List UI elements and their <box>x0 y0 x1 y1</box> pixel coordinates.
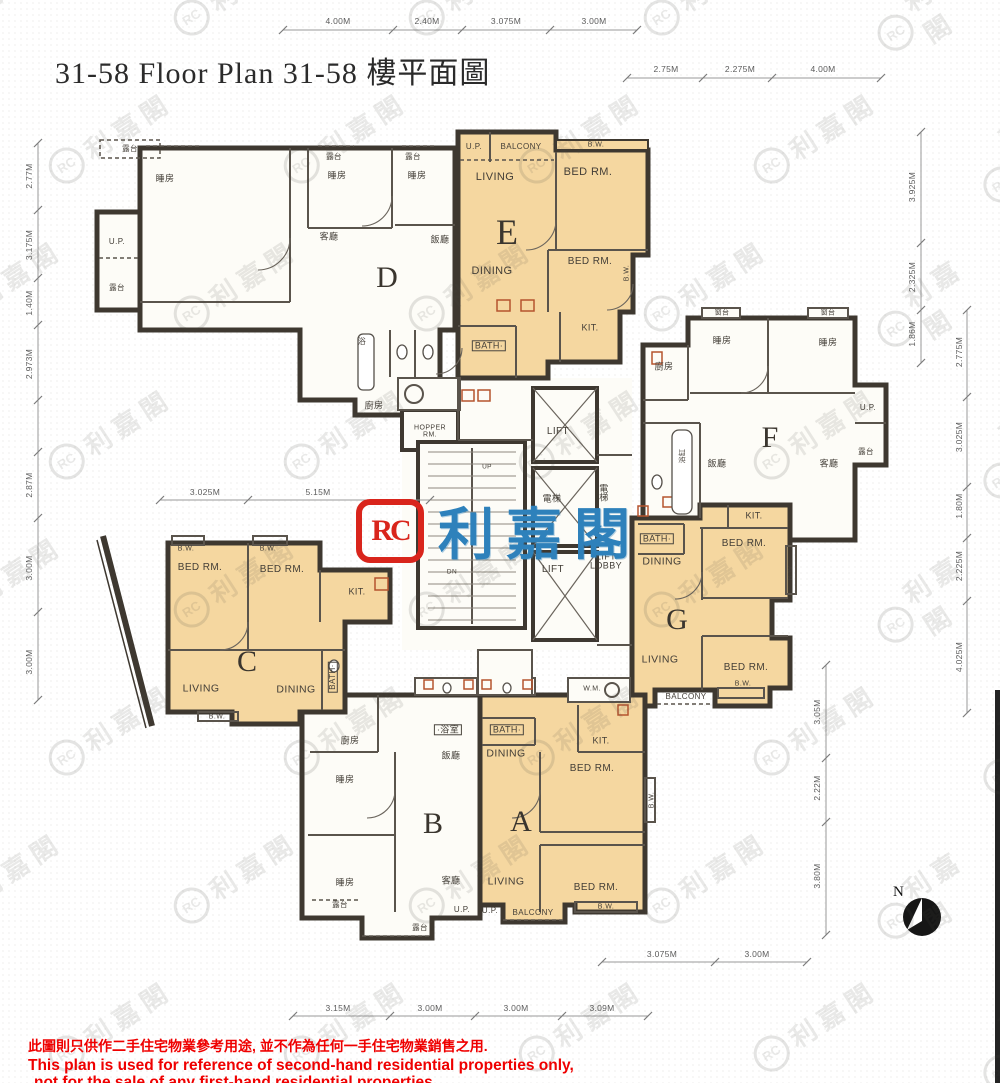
room-label: 露台 <box>122 145 138 153</box>
dimension-label: 3.00M <box>24 649 34 674</box>
dimension-label: 2.87M <box>24 472 34 497</box>
room-label: 窗台 <box>821 309 836 316</box>
room-label: KIT. <box>592 736 609 745</box>
room-label: 客廳 <box>820 459 839 468</box>
room-label: 露台 <box>858 448 874 456</box>
dimension-label: 2.22M <box>812 775 822 800</box>
room-label: U.P. <box>454 906 470 914</box>
room-label: U.P. <box>860 404 876 412</box>
room-label: BED RM. <box>178 563 222 574</box>
room-label: BATH· <box>490 724 524 735</box>
disclaimer-english-1: This plan is used for reference of secon… <box>28 1057 574 1074</box>
room-label: B.W. <box>260 545 276 552</box>
unit-letter-G: G <box>666 603 688 637</box>
room-label: 窗台 <box>715 309 730 316</box>
dimension-label: 3.175M <box>24 230 34 260</box>
room-label: B.W. <box>598 903 614 910</box>
room-label: B.W. <box>648 792 655 808</box>
dimension-label: 2.973M <box>24 349 34 379</box>
room-label: LIVING <box>183 683 220 694</box>
dimension-label: 5.15M <box>305 487 330 497</box>
room-label: 客廳 <box>320 232 339 241</box>
room-label: ·浴室 <box>434 724 462 735</box>
room-label: 廚房 <box>655 362 674 371</box>
room-label: UP <box>482 465 492 472</box>
room-label: BED RM. <box>568 257 612 268</box>
room-label: BED RM. <box>724 663 768 674</box>
dimension-label: 3.925M <box>907 172 917 202</box>
room-label: DINING <box>472 266 513 278</box>
room-label: B.W. <box>588 141 604 148</box>
dimension-label: 2.775M <box>954 337 964 367</box>
room-label: 露台 <box>412 924 428 932</box>
room-label: LIVING <box>488 876 525 887</box>
unit-letter-A: A <box>510 805 532 839</box>
room-label: 浴缸 <box>679 449 686 464</box>
unit-letter-E: E <box>496 211 518 253</box>
ricacorp-logo: RC 利嘉閣 <box>356 490 642 571</box>
dimension-label: 3.075M <box>491 16 521 26</box>
disclaimer-english-2: not for the sale of any first-hand resid… <box>34 1074 574 1083</box>
room-label: KIT. <box>348 587 365 596</box>
dimension-label: 4.00M <box>325 16 350 26</box>
dimension-label: 1.80M <box>954 493 964 518</box>
dimension-label: 2.75M <box>653 64 678 74</box>
room-label: BATH· <box>640 533 674 544</box>
page-title: 31-58 Floor Plan 31-58 樓平面圖 <box>55 48 490 92</box>
dimension-label: 3.09M <box>589 1003 614 1013</box>
room-label: 睡房 <box>336 775 355 784</box>
unit-letter-C: C <box>237 645 257 679</box>
room-label: 浴 <box>358 338 366 346</box>
disclaimer: 此圖則只供作二手住宅物業參考用途, 並不作為任何一手住宅物業銷售之用. This… <box>28 1036 574 1083</box>
room-label: BED RM. <box>574 883 618 894</box>
dimension-label: 3.025M <box>954 422 964 452</box>
room-label: 露台 <box>109 284 125 292</box>
dimension-label: 2.275M <box>725 64 755 74</box>
room-label: DINING <box>486 748 525 759</box>
dimension-label: 1.86M <box>907 321 917 346</box>
room-label: BATH· <box>328 661 338 692</box>
room-label: 飯廳 <box>442 751 461 760</box>
room-label: KIT. <box>745 511 762 520</box>
north-label: N <box>893 884 904 901</box>
room-label: B.W. <box>178 545 194 552</box>
room-label: U.P. <box>109 238 125 246</box>
room-label: BALCONY <box>512 909 553 917</box>
dimension-label: 2.225M <box>954 551 964 581</box>
room-label: B.W. <box>209 713 225 720</box>
room-label: LIVING <box>476 172 514 184</box>
room-label: DINING <box>642 556 681 567</box>
unit-letter-B: B <box>423 807 443 841</box>
dimension-label: 2.325M <box>907 262 917 292</box>
dimension-label: 4.00M <box>810 64 835 74</box>
dimension-label: 3.00M <box>744 949 769 959</box>
dimension-label: 3.075M <box>647 949 677 959</box>
room-label: BALCONY <box>665 693 706 701</box>
room-label: 睡房 <box>713 336 732 345</box>
unit-letter-F: F <box>762 421 779 455</box>
room-label: U.P. <box>466 143 482 151</box>
room-label: 飯廳 <box>431 235 450 244</box>
room-label: 廚房 <box>365 401 384 410</box>
room-label: BALCONY <box>500 143 541 151</box>
room-label: U.P. <box>482 907 498 915</box>
room-label: LIVING <box>642 654 679 665</box>
dimension-label: 2.40M <box>414 16 439 26</box>
room-label: 露台 <box>326 153 342 161</box>
dimension-label: 3.05M <box>812 699 822 724</box>
dimension-label: 3.00M <box>503 1003 528 1013</box>
room-label: 睡房 <box>328 171 347 180</box>
room-label: B.W. <box>623 265 630 281</box>
room-label: B.W. <box>735 680 751 687</box>
room-label: BED RM. <box>570 764 614 775</box>
room-label: 睡房 <box>336 878 355 887</box>
room-label: BED RM. <box>260 565 304 576</box>
dimension-label: 2.77M <box>24 163 34 188</box>
room-label: 睡房 <box>156 174 175 183</box>
room-label: HOPPER RM. <box>406 425 454 440</box>
room-label: DINING <box>276 684 315 695</box>
room-label: B.W. <box>787 564 794 580</box>
dimension-label: 3.00M <box>417 1003 442 1013</box>
room-label: 露台 <box>405 153 421 161</box>
room-label: 睡房 <box>408 171 427 180</box>
room-label: LIFT <box>547 427 569 438</box>
floor-plan-page: 31-58 Floor Plan 31-58 樓平面圖 <box>0 0 1000 1083</box>
dimension-label: 3.80M <box>812 863 822 888</box>
brand-name: 利嘉閣 <box>438 490 642 571</box>
room-label: 客廳 <box>442 876 461 885</box>
room-label: 廚房 <box>341 736 360 745</box>
unit-letter-D: D <box>376 261 398 295</box>
room-label: W.M. <box>583 685 601 692</box>
dimension-label: 4.025M <box>954 642 964 672</box>
dimension-label: 3.00M <box>24 555 34 580</box>
dimension-label: 3.15M <box>325 1003 350 1013</box>
rc-emblem-icon: RC <box>356 499 424 563</box>
disclaimer-chinese: 此圖則只供作二手住宅物業參考用途, 並不作為任何一手住宅物業銷售之用. <box>28 1036 574 1056</box>
room-label: KIT. <box>581 323 598 332</box>
room-label: BATH· <box>472 340 506 351</box>
room-label: 飯廳 <box>708 459 727 468</box>
room-label: BED RM. <box>564 167 613 179</box>
room-label: 露台 <box>332 901 348 909</box>
dimension-label: 1.40M <box>24 290 34 315</box>
dimension-label: 3.00M <box>581 16 606 26</box>
dimension-label: 3.025M <box>190 487 220 497</box>
room-label: BED RM. <box>722 539 766 550</box>
room-label: 睡房 <box>819 338 838 347</box>
